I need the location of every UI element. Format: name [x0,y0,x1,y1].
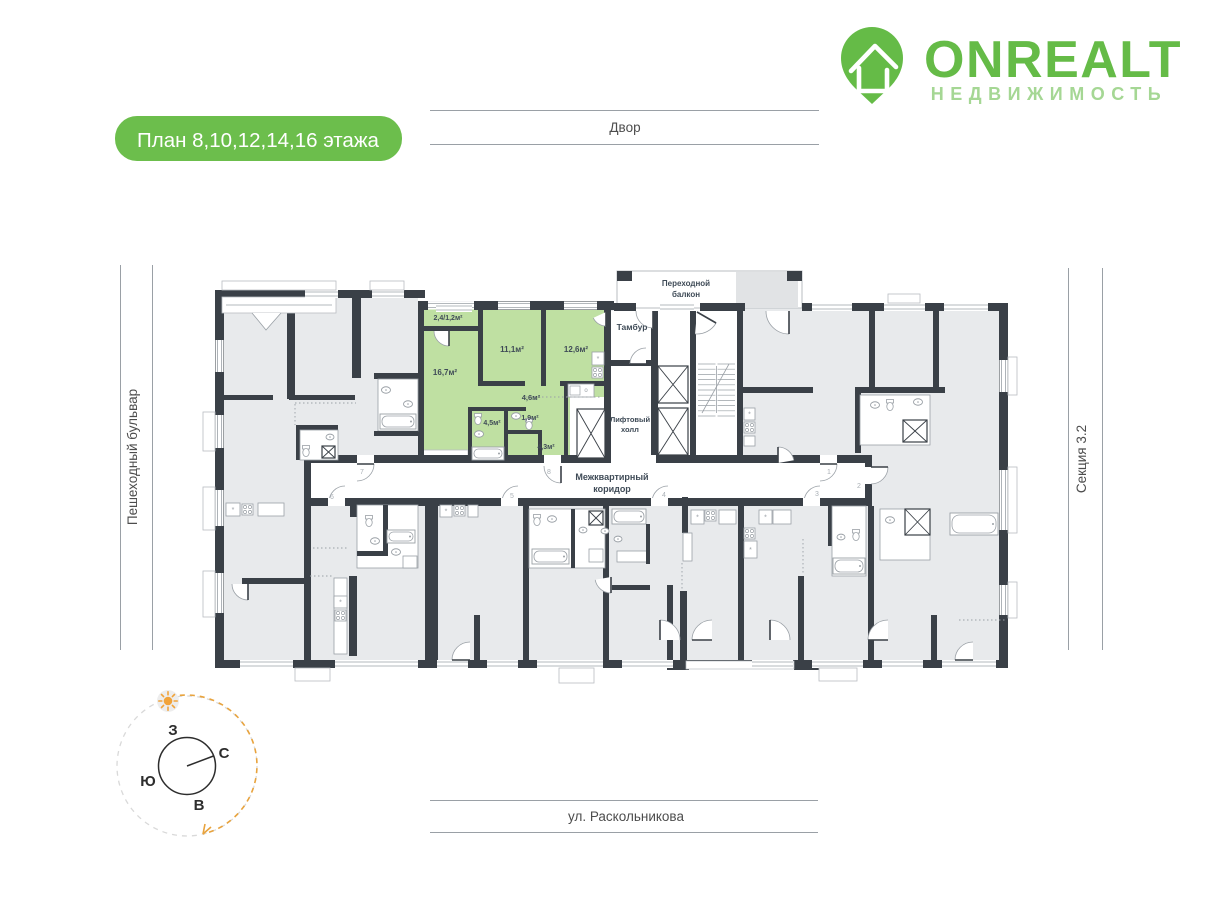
svg-text:4,5м²: 4,5м² [483,420,501,427]
svg-text:5: 5 [510,493,514,500]
svg-text:Переходной: Переходной [662,279,710,288]
svg-text:16,7м²: 16,7м² [433,368,457,377]
svg-text:1: 1 [827,469,831,476]
svg-text:8: 8 [547,469,551,476]
svg-text:2,4/1,2м²: 2,4/1,2м² [434,315,464,322]
svg-text:холл: холл [621,425,639,434]
svg-text:Межквартирный: Межквартирный [575,472,648,482]
svg-text:Тамбур: Тамбур [617,322,648,332]
svg-text:коридор: коридор [593,484,631,494]
svg-text:*: * [232,507,235,514]
svg-text:Лифтовый: Лифтовый [610,415,651,424]
svg-text:ONREALT: ONREALT [924,31,1182,89]
svg-text:балкон: балкон [672,290,700,299]
svg-text:Ю: Ю [140,773,155,790]
svg-text:*: * [339,600,342,607]
svg-text:1,9м²: 1,9м² [521,415,539,422]
svg-text:4,3м²: 4,3м² [537,444,555,451]
svg-text:Двор: Двор [609,120,640,135]
svg-text:*: * [445,509,448,516]
svg-text:План 8,10,12,14,16 этажа: План 8,10,12,14,16 этажа [137,129,379,152]
svg-text:6: 6 [330,494,334,501]
svg-text:Секция 3.2: Секция 3.2 [1074,425,1089,493]
svg-text:*: * [597,356,600,363]
svg-text:4: 4 [662,492,666,499]
svg-text:В: В [194,797,205,814]
svg-text:4,6м²: 4,6м² [522,393,541,402]
svg-text:*: * [696,515,699,522]
svg-text:11,1м²: 11,1м² [500,345,524,354]
svg-text:12,6м²: 12,6м² [564,345,588,354]
svg-text:*: * [749,547,752,554]
svg-text:НЕДВИЖИМОСТЬ: НЕДВИЖИМОСТЬ [931,84,1167,104]
svg-text:*: * [764,515,767,522]
svg-text:С: С [219,745,230,762]
svg-text:2: 2 [857,483,861,490]
svg-text:3: 3 [815,491,819,498]
svg-text:З: З [168,722,177,739]
svg-text:7: 7 [360,469,364,476]
svg-text:Пешеходный бульвар: Пешеходный бульвар [125,389,140,525]
svg-text:ул. Раскольникова: ул. Раскольникова [568,809,684,824]
svg-text:*: * [748,412,751,419]
